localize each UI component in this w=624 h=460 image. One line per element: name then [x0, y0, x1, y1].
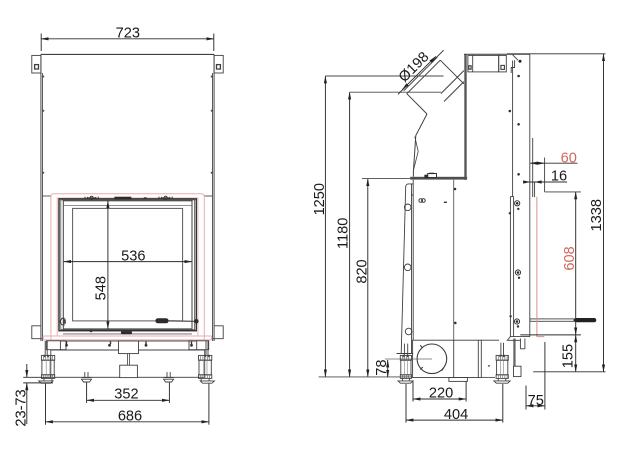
svg-text:352: 352 [114, 387, 138, 403]
svg-text:723: 723 [116, 26, 140, 42]
svg-text:60: 60 [561, 150, 577, 166]
svg-text:1180: 1180 [336, 218, 352, 249]
svg-text:686: 686 [118, 408, 142, 424]
svg-text:1250: 1250 [312, 183, 328, 215]
svg-text:404: 404 [444, 407, 468, 423]
svg-text:23-73: 23-73 [14, 389, 30, 426]
svg-text:155: 155 [561, 344, 577, 368]
svg-text:220: 220 [429, 386, 453, 402]
svg-text:1338: 1338 [589, 199, 605, 231]
svg-text:548: 548 [94, 276, 110, 300]
svg-text:536: 536 [121, 248, 145, 264]
svg-text:75: 75 [528, 393, 544, 409]
svg-text:78: 78 [374, 359, 390, 375]
svg-text:16: 16 [551, 169, 567, 185]
svg-text:608: 608 [562, 246, 578, 270]
svg-text:820: 820 [354, 259, 370, 283]
